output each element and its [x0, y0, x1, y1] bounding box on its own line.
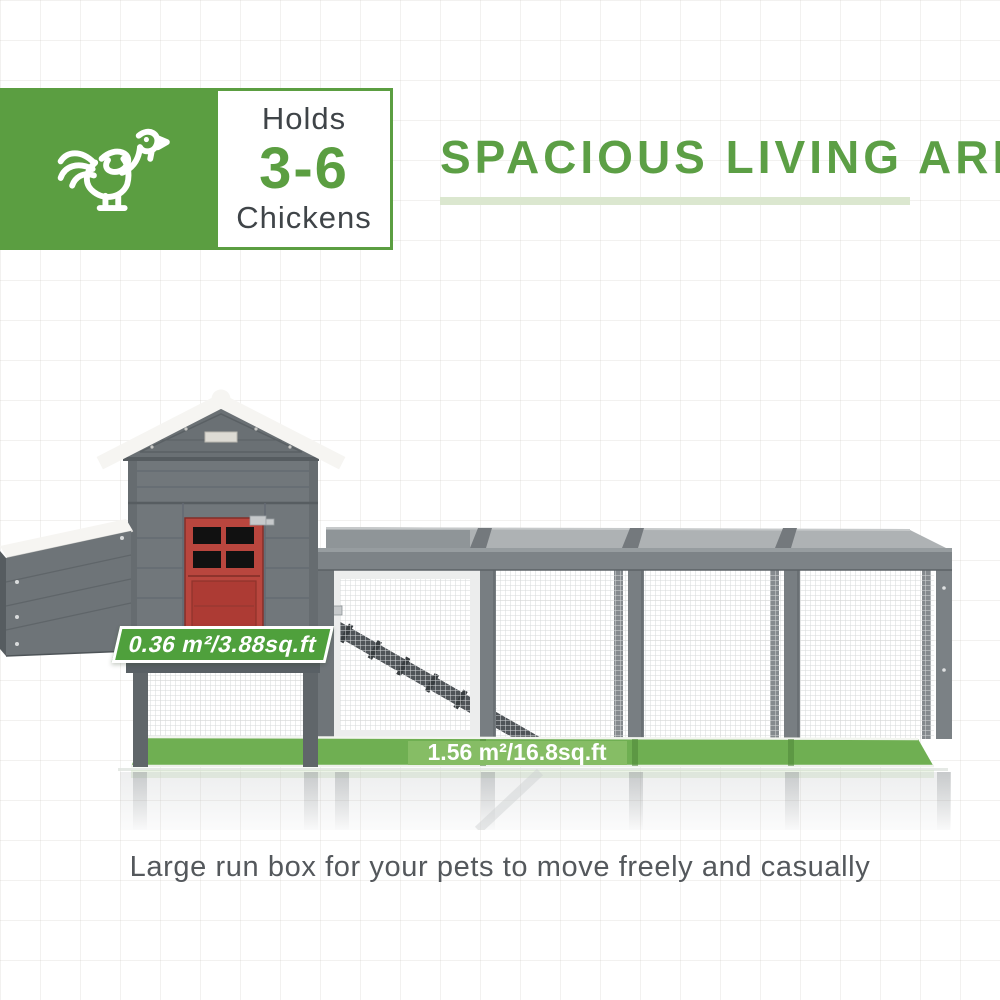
capacity-value: 3-6 [259, 139, 349, 200]
run-area-label: 1.56 m²/16.8sq.ft [428, 739, 607, 765]
floor-reflection [118, 768, 951, 830]
capacity-badge-text-box: Holds 3-6 Chickens [215, 88, 393, 250]
door-window-pane [226, 551, 254, 568]
wire-mesh-under-house [148, 672, 303, 739]
run-top-beam [318, 548, 952, 570]
nesting-box [0, 519, 133, 656]
product-image: 1.56 m²/16.8sq.ft [0, 370, 1000, 830]
house-leg-right [303, 658, 318, 767]
capacity-badge-icon-box [0, 88, 215, 250]
coop-illustration: 1.56 m²/16.8sq.ft [0, 370, 1000, 830]
chicken-icon [44, 105, 172, 233]
caption-text: Large run box for your pets to move free… [0, 851, 1000, 884]
infographic-page: Holds 3-6 Chickens SPACIOUS LIVING AREA [0, 0, 1000, 1000]
door-window-pane [193, 551, 221, 568]
house-roof [106, 390, 336, 463]
page-title: SPACIOUS LIVING AREA [440, 134, 1000, 180]
door-window-pane [226, 527, 254, 544]
run-area-floor-banner: 1.56 m²/16.8sq.ft [131, 737, 934, 767]
capacity-label-holds: Holds [262, 102, 346, 136]
headline-block: SPACIOUS LIVING AREA [440, 134, 1000, 205]
title-underline [440, 197, 910, 205]
brand-plaque [205, 432, 237, 442]
coop-area-banner: 0.36 m²/3.88sq.ft [111, 626, 334, 663]
capacity-label-chickens: Chickens [236, 201, 372, 235]
door-hinge-icon [250, 516, 266, 525]
door-window-pane [193, 527, 221, 544]
coop-area-label: 0.36 m²/3.88sq.ft [126, 631, 320, 658]
house-leg-left [133, 658, 148, 767]
run-roof [326, 527, 946, 548]
